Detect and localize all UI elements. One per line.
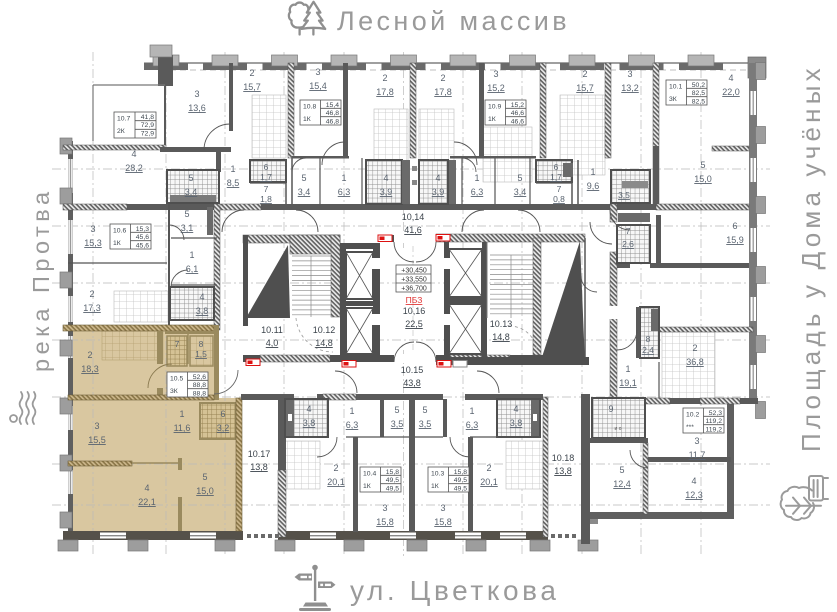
svg-text:46,8: 46,8 bbox=[326, 118, 339, 125]
svg-text:3: 3 bbox=[94, 421, 99, 431]
svg-text:3: 3 bbox=[694, 436, 699, 446]
svg-text:15,8: 15,8 bbox=[454, 469, 467, 476]
svg-text:10.5: 10.5 bbox=[170, 376, 183, 383]
svg-text:+33,550: +33,550 bbox=[401, 277, 427, 284]
svg-text:52,3: 52,3 bbox=[709, 410, 722, 417]
svg-text:49,5: 49,5 bbox=[454, 485, 467, 492]
svg-text:3,4: 3,4 bbox=[298, 187, 311, 197]
svg-text:3,4: 3,4 bbox=[514, 187, 527, 197]
svg-text:17,8: 17,8 bbox=[376, 87, 394, 97]
svg-text:6: 6 bbox=[554, 162, 559, 172]
svg-text:3,4: 3,4 bbox=[185, 187, 198, 197]
svg-text:1: 1 bbox=[590, 167, 595, 177]
svg-text:15,3: 15,3 bbox=[136, 226, 149, 233]
svg-text:15,2: 15,2 bbox=[511, 102, 524, 109]
svg-text:10.8: 10.8 bbox=[303, 104, 316, 111]
svg-text:7: 7 bbox=[175, 339, 180, 349]
svg-text:15,4: 15,4 bbox=[326, 102, 339, 109]
svg-text:4: 4 bbox=[306, 404, 311, 414]
svg-text:1: 1 bbox=[179, 409, 184, 419]
svg-text:15,7: 15,7 bbox=[243, 82, 261, 92]
svg-text:12,3: 12,3 bbox=[685, 490, 703, 500]
svg-text:Лесной массив: Лесной массив bbox=[337, 6, 570, 36]
svg-text:***: *** bbox=[686, 424, 694, 431]
svg-text:3К: 3К bbox=[669, 96, 677, 103]
svg-text:11,6: 11,6 bbox=[174, 423, 191, 433]
svg-text:15,5: 15,5 bbox=[88, 435, 106, 445]
svg-text:10,16: 10,16 bbox=[403, 306, 426, 316]
svg-text:2: 2 bbox=[333, 463, 338, 473]
svg-text:72,9: 72,9 bbox=[141, 130, 154, 137]
svg-text:8,5: 8,5 bbox=[227, 178, 240, 188]
svg-text:10.7: 10.7 bbox=[117, 116, 130, 123]
svg-text:1К: 1К bbox=[431, 483, 439, 490]
svg-text:46,6: 46,6 bbox=[511, 118, 524, 125]
svg-text:10.1: 10.1 bbox=[669, 84, 682, 91]
svg-text:6,3: 6,3 bbox=[338, 187, 351, 197]
svg-text:10.12: 10.12 bbox=[313, 325, 336, 335]
svg-text:5: 5 bbox=[394, 405, 399, 415]
svg-text:10.15: 10.15 bbox=[401, 365, 424, 375]
svg-text:46,8: 46,8 bbox=[326, 110, 339, 117]
svg-text:2,4: 2,4 bbox=[642, 345, 654, 355]
svg-text:13,6: 13,6 bbox=[188, 103, 206, 113]
svg-text:6,3: 6,3 bbox=[466, 420, 479, 430]
svg-text:3,8: 3,8 bbox=[510, 418, 523, 428]
svg-text:49,5: 49,5 bbox=[386, 485, 399, 492]
svg-text:3: 3 bbox=[440, 503, 445, 513]
svg-text:5: 5 bbox=[700, 160, 705, 170]
svg-text:5: 5 bbox=[202, 472, 207, 482]
svg-text:15,8: 15,8 bbox=[376, 517, 394, 527]
svg-text:3,5: 3,5 bbox=[419, 419, 432, 429]
svg-text:12,4: 12,4 bbox=[613, 479, 631, 489]
svg-text:2: 2 bbox=[582, 69, 587, 79]
svg-text:13,2: 13,2 bbox=[621, 83, 639, 93]
svg-text:7: 7 bbox=[264, 184, 269, 194]
svg-text:1: 1 bbox=[189, 250, 194, 260]
svg-text:6: 6 bbox=[264, 162, 269, 172]
svg-text:10.3: 10.3 bbox=[431, 471, 444, 478]
svg-text:15,0: 15,0 bbox=[694, 174, 712, 184]
svg-text:1,7: 1,7 bbox=[260, 172, 272, 182]
svg-text:45,6: 45,6 bbox=[136, 242, 149, 249]
svg-text:2: 2 bbox=[89, 289, 94, 299]
svg-text:5: 5 bbox=[422, 405, 427, 415]
svg-text:45,6: 45,6 bbox=[136, 234, 149, 241]
svg-text:36,8: 36,8 bbox=[686, 357, 704, 367]
svg-text:Площадь у Дома учёных: Площадь у Дома учёных bbox=[796, 64, 826, 452]
svg-text:3: 3 bbox=[382, 503, 387, 513]
svg-text:4: 4 bbox=[435, 173, 440, 183]
svg-text:22,1: 22,1 bbox=[138, 497, 156, 507]
svg-text:20,1: 20,1 bbox=[480, 477, 498, 487]
svg-text:82,5: 82,5 bbox=[692, 98, 705, 105]
svg-text:ПБЗ: ПБЗ bbox=[406, 295, 423, 305]
svg-text:5: 5 bbox=[184, 209, 189, 219]
svg-text:3,8: 3,8 bbox=[303, 418, 316, 428]
svg-text:1: 1 bbox=[625, 364, 630, 374]
svg-text:46,6: 46,6 bbox=[511, 110, 524, 117]
svg-text:4: 4 bbox=[691, 476, 696, 486]
svg-text:1,5: 1,5 bbox=[195, 349, 207, 359]
svg-text:5: 5 bbox=[301, 173, 306, 183]
svg-text:2К: 2К bbox=[117, 128, 125, 135]
svg-text:119,2: 119,2 bbox=[705, 418, 722, 425]
svg-text:1: 1 bbox=[474, 173, 479, 183]
svg-text:15,8: 15,8 bbox=[386, 469, 399, 476]
svg-text:2,6: 2,6 bbox=[622, 239, 634, 249]
svg-text:3,5: 3,5 bbox=[618, 190, 630, 200]
svg-text:6: 6 bbox=[220, 409, 225, 419]
svg-text:ул. Цветкова: ул. Цветкова bbox=[350, 575, 560, 606]
svg-text:10.18: 10.18 bbox=[552, 453, 575, 463]
svg-text:3: 3 bbox=[315, 67, 320, 77]
svg-text:41,6: 41,6 bbox=[404, 225, 422, 235]
svg-text:20,1: 20,1 bbox=[327, 477, 345, 487]
svg-text:2: 2 bbox=[87, 350, 92, 360]
svg-text:+36,700: +36,700 bbox=[401, 286, 427, 293]
svg-text:10.2: 10.2 bbox=[686, 412, 699, 419]
svg-text:15,7: 15,7 bbox=[576, 83, 594, 93]
svg-text:2: 2 bbox=[692, 343, 697, 353]
svg-text:4: 4 bbox=[513, 404, 518, 414]
svg-text:2: 2 bbox=[382, 73, 387, 83]
svg-text:15,0: 15,0 bbox=[196, 486, 214, 496]
svg-text:4: 4 bbox=[131, 149, 136, 159]
svg-text:11,7: 11,7 bbox=[689, 450, 706, 460]
svg-text:49,5: 49,5 bbox=[454, 477, 467, 484]
svg-text:15,9: 15,9 bbox=[726, 235, 744, 245]
svg-text:82,5: 82,5 bbox=[692, 90, 705, 97]
svg-text:9: 9 bbox=[608, 404, 613, 414]
svg-text:1: 1 bbox=[469, 406, 474, 416]
svg-text:4: 4 bbox=[383, 173, 388, 183]
svg-text:15,4: 15,4 bbox=[309, 81, 327, 91]
svg-text:1: 1 bbox=[349, 406, 354, 416]
svg-text:8: 8 bbox=[199, 339, 204, 349]
svg-text:14,8: 14,8 bbox=[315, 338, 333, 348]
svg-text:72,9: 72,9 bbox=[141, 122, 154, 129]
svg-text:3,1: 3,1 bbox=[181, 223, 194, 233]
svg-text:1,7: 1,7 bbox=[550, 172, 562, 182]
svg-text:3,5: 3,5 bbox=[391, 419, 404, 429]
svg-text:8: 8 bbox=[646, 334, 651, 344]
svg-text:10.17: 10.17 bbox=[248, 449, 271, 459]
svg-text:10,14: 10,14 bbox=[402, 212, 425, 222]
svg-text:3: 3 bbox=[627, 69, 632, 79]
svg-text:3,2: 3,2 bbox=[217, 423, 230, 433]
svg-text:1К: 1К bbox=[488, 116, 496, 123]
svg-text:14,8: 14,8 bbox=[492, 332, 510, 342]
svg-text:1,8: 1,8 bbox=[260, 194, 272, 204]
svg-text:22,5: 22,5 bbox=[405, 319, 423, 329]
svg-text:4: 4 bbox=[199, 292, 204, 302]
svg-text:6,3: 6,3 bbox=[471, 187, 484, 197]
svg-text:52,6: 52,6 bbox=[193, 374, 206, 381]
svg-text:7: 7 bbox=[626, 226, 631, 236]
svg-text:41,8: 41,8 bbox=[141, 114, 154, 121]
svg-text:17,8: 17,8 bbox=[434, 87, 452, 97]
svg-text:2: 2 bbox=[249, 68, 254, 78]
svg-text:18,3: 18,3 bbox=[81, 364, 99, 374]
svg-text:50,2: 50,2 bbox=[692, 82, 705, 89]
svg-text:1: 1 bbox=[341, 173, 346, 183]
svg-text:15,3: 15,3 bbox=[84, 238, 102, 248]
svg-text:10.9: 10.9 bbox=[488, 104, 501, 111]
svg-text:2: 2 bbox=[440, 73, 445, 83]
svg-text:+30,450: +30,450 bbox=[401, 268, 427, 275]
svg-text:1: 1 bbox=[230, 164, 235, 174]
svg-text:5: 5 bbox=[619, 465, 624, 475]
svg-text:43,8: 43,8 bbox=[403, 378, 421, 388]
svg-text:9,6: 9,6 bbox=[587, 181, 600, 191]
svg-text:0,8: 0,8 bbox=[553, 194, 565, 204]
svg-text:6,1: 6,1 bbox=[186, 264, 199, 274]
svg-text:3,9: 3,9 bbox=[432, 187, 445, 197]
svg-text:2: 2 bbox=[486, 463, 491, 473]
svg-text:49,5: 49,5 bbox=[386, 477, 399, 484]
svg-text:119,2: 119,2 bbox=[705, 426, 722, 433]
svg-text:1К: 1К bbox=[113, 240, 121, 247]
svg-text:17,3: 17,3 bbox=[83, 303, 101, 313]
svg-text:6,3: 6,3 bbox=[346, 420, 359, 430]
svg-text:22,0: 22,0 bbox=[722, 87, 740, 97]
svg-text:19,1: 19,1 bbox=[619, 378, 637, 388]
svg-text:3: 3 bbox=[493, 69, 498, 79]
svg-text:3: 3 bbox=[194, 89, 199, 99]
svg-text:4: 4 bbox=[144, 483, 149, 493]
svg-text:15,8: 15,8 bbox=[434, 517, 452, 527]
svg-text:и о: и о bbox=[615, 426, 622, 432]
svg-text:1К: 1К bbox=[303, 116, 311, 123]
svg-text:река Протва: река Протва bbox=[28, 187, 54, 372]
svg-text:10.11: 10.11 bbox=[261, 325, 283, 335]
svg-text:1К: 1К bbox=[363, 483, 371, 490]
svg-text:5: 5 bbox=[188, 173, 193, 183]
svg-text:3К: 3К bbox=[170, 388, 178, 395]
svg-text:15,2: 15,2 bbox=[487, 83, 505, 93]
svg-text:10.13: 10.13 bbox=[490, 319, 513, 329]
svg-text:3,8: 3,8 bbox=[196, 306, 209, 316]
svg-text:10.6: 10.6 bbox=[113, 228, 126, 235]
svg-text:3: 3 bbox=[90, 224, 95, 234]
svg-text:13,8: 13,8 bbox=[554, 466, 572, 476]
svg-text:28,2: 28,2 bbox=[125, 163, 143, 173]
svg-text:88,8: 88,8 bbox=[193, 390, 206, 397]
svg-text:4: 4 bbox=[728, 73, 733, 83]
svg-text:3,9: 3,9 bbox=[380, 187, 393, 197]
svg-text:5: 5 bbox=[517, 173, 522, 183]
svg-text:7: 7 bbox=[557, 184, 562, 194]
svg-text:13,8: 13,8 bbox=[250, 462, 268, 472]
svg-text:6: 6 bbox=[732, 221, 737, 231]
svg-text:88,8: 88,8 bbox=[193, 382, 206, 389]
svg-text:10.4: 10.4 bbox=[363, 471, 376, 478]
svg-text:4,0: 4,0 bbox=[266, 338, 279, 348]
